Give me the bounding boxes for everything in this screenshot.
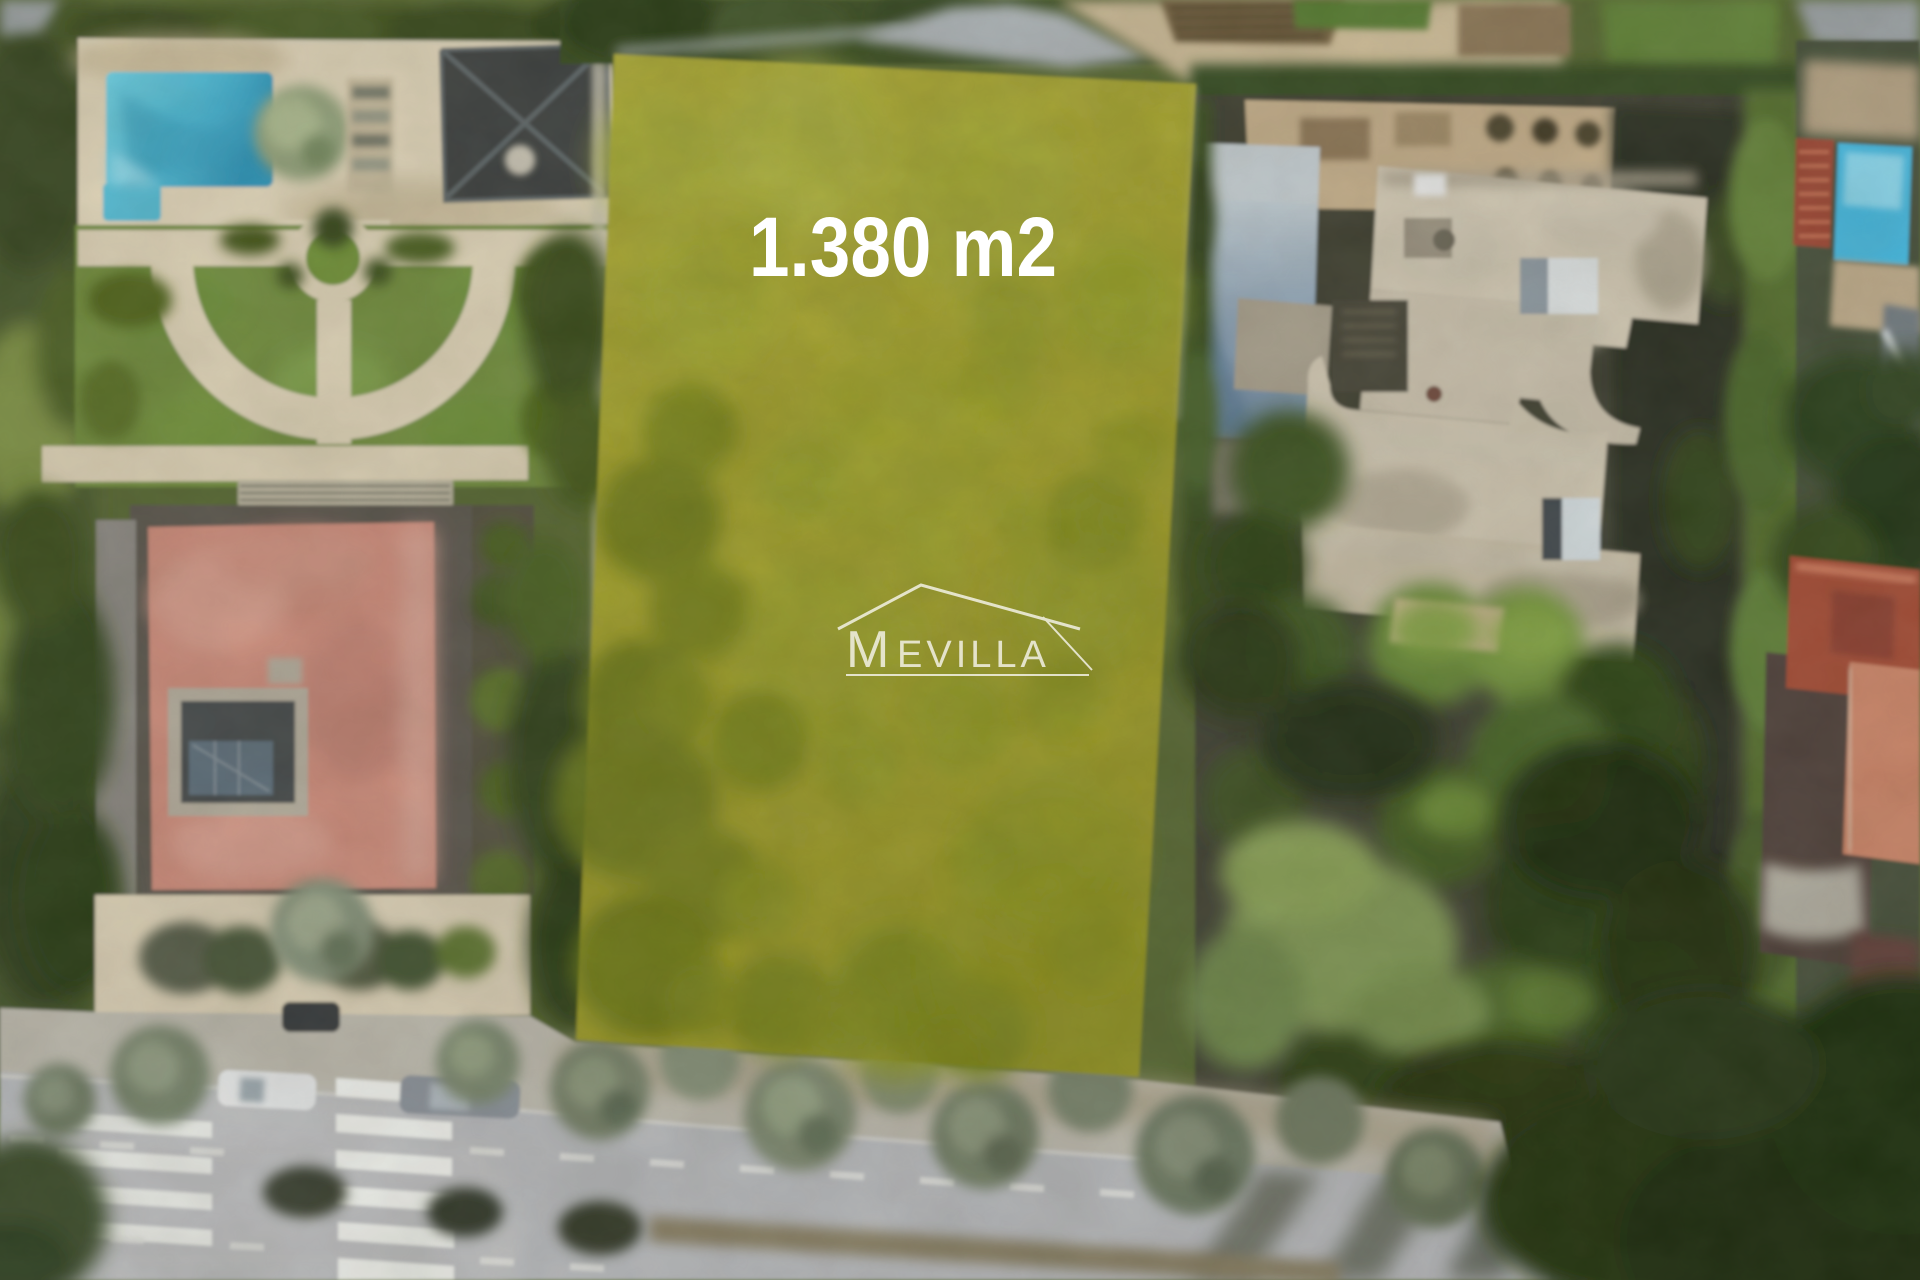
svg-text:EVILLA: EVILLA xyxy=(897,634,1050,676)
svg-text:M: M xyxy=(846,621,891,679)
svg-text:1.380 m2: 1.380 m2 xyxy=(749,200,1057,294)
